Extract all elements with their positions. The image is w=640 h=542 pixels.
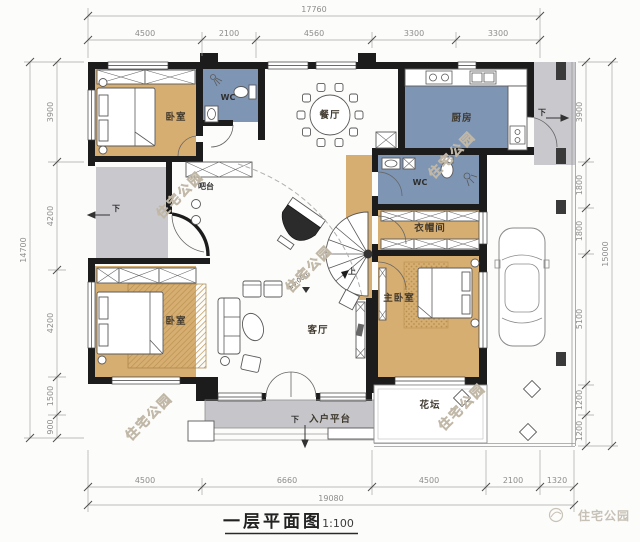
dim-bottom-seg-4: 2100: [503, 476, 523, 485]
bed: [97, 292, 163, 364]
room-label-bedroom-top-left: 卧室: [165, 111, 186, 123]
dim-top-seg-5: 3300: [488, 29, 508, 38]
dim-bottom-seg-1: 4500: [135, 476, 155, 485]
dim-right-seg-6: 1200: [575, 421, 584, 441]
door-arc: [211, 125, 233, 147]
dim-right-seg-1: 3900: [575, 102, 584, 122]
marker-down-right-porch: 下: [538, 108, 546, 117]
room-label-wc-top: WC: [221, 93, 236, 102]
marker-down-left-porch: 下: [112, 204, 120, 213]
floor-plan-canvas: 卧室 WC 餐厅 厨房 吧台 WC 衣帽间 卧室 客厅 主卧室 花坛 入户平台 …: [0, 0, 640, 542]
window: [112, 377, 180, 384]
tv-cabinet: [356, 302, 365, 358]
curved-hall-wall: [172, 214, 208, 256]
wardrobe: [97, 268, 196, 283]
grand-piano: [268, 197, 326, 256]
dim-left-seg-1: 3900: [46, 102, 55, 122]
window: [458, 62, 476, 69]
dim-left-seg-3: 4200: [46, 313, 55, 333]
watermark-4: 住宅公园: [122, 390, 176, 444]
spiral-staircase: [326, 212, 373, 310]
car: [495, 228, 549, 346]
title-block: 一层平面图 1:100: [223, 512, 358, 534]
room-label-wc-middle: WC: [413, 178, 428, 187]
window: [108, 62, 168, 69]
dim-right-seg-5: 1200: [575, 390, 584, 410]
entry-door-arc: [291, 372, 316, 397]
brand-logo: 住宅公园: [550, 508, 631, 523]
room-label-kitchen: 厨房: [451, 112, 472, 124]
dim-bottom-seg-2: 6660: [277, 476, 297, 485]
dim-left-seg-4: 1500: [46, 386, 55, 406]
dim-bottom-total: 19080: [318, 494, 343, 503]
wardrobe: [97, 70, 195, 84]
bed: [97, 79, 155, 155]
master-bed: [418, 259, 479, 327]
toilet: [234, 85, 256, 99]
dim-right-total: 15000: [601, 241, 610, 266]
dim-top-seg-1: 4500: [135, 29, 155, 38]
room-label-master-bedroom: 主卧室: [383, 292, 415, 304]
dim-top-seg-2: 2100: [219, 29, 239, 38]
brand-name: 住宅公园: [578, 508, 630, 523]
window: [395, 377, 465, 385]
window: [88, 90, 95, 140]
brand-logo-swirl-icon: [551, 512, 561, 517]
entry-door-arc: [266, 372, 291, 397]
marker-down-entry: 下: [291, 415, 299, 424]
room-label-dining: 餐厅: [318, 109, 340, 121]
dim-left-total: 14700: [19, 237, 28, 262]
title-scale: 1:100: [322, 517, 354, 530]
dim-left-seg-2: 4200: [46, 206, 55, 226]
room-label-entry-platform: 入户平台: [308, 413, 351, 425]
level-marker-icon: [302, 287, 310, 293]
dim-bottom-seg-5: 1320: [547, 476, 567, 485]
dim-left-seg-5: 900: [46, 419, 55, 434]
column-box: [376, 132, 396, 148]
dim-right-seg-4: 5100: [575, 309, 584, 329]
room-label-bedroom-bottom-left: 卧室: [165, 315, 186, 327]
dim-right-seg-2: 1800: [575, 175, 584, 195]
room-label-flower-bed: 花坛: [419, 399, 440, 411]
dim-top-total: 17760: [301, 5, 326, 14]
room-label-living: 客厅: [306, 324, 328, 336]
window: [316, 62, 356, 69]
window: [88, 282, 95, 348]
brand-logo-icon: [550, 509, 563, 522]
dim-top-seg-3: 4560: [304, 29, 324, 38]
sofa-set: [218, 281, 282, 373]
page-title: 一层平面图: [223, 512, 323, 532]
marker-up-stairs: 上: [348, 266, 356, 276]
window: [479, 272, 487, 348]
floor-plan-page: 卧室 WC 餐厅 厨房 吧台 WC 衣帽间 卧室 客厅 主卧室 花坛 入户平台 …: [0, 0, 640, 542]
window: [268, 62, 308, 69]
dim-right-seg-3: 1800: [575, 221, 584, 241]
dim-bottom-seg-3: 4500: [419, 476, 439, 485]
dim-top-seg-4: 3300: [404, 29, 424, 38]
window: [479, 212, 487, 244]
sink: [205, 106, 218, 122]
room-label-cloakroom: 衣帽间: [414, 222, 446, 234]
